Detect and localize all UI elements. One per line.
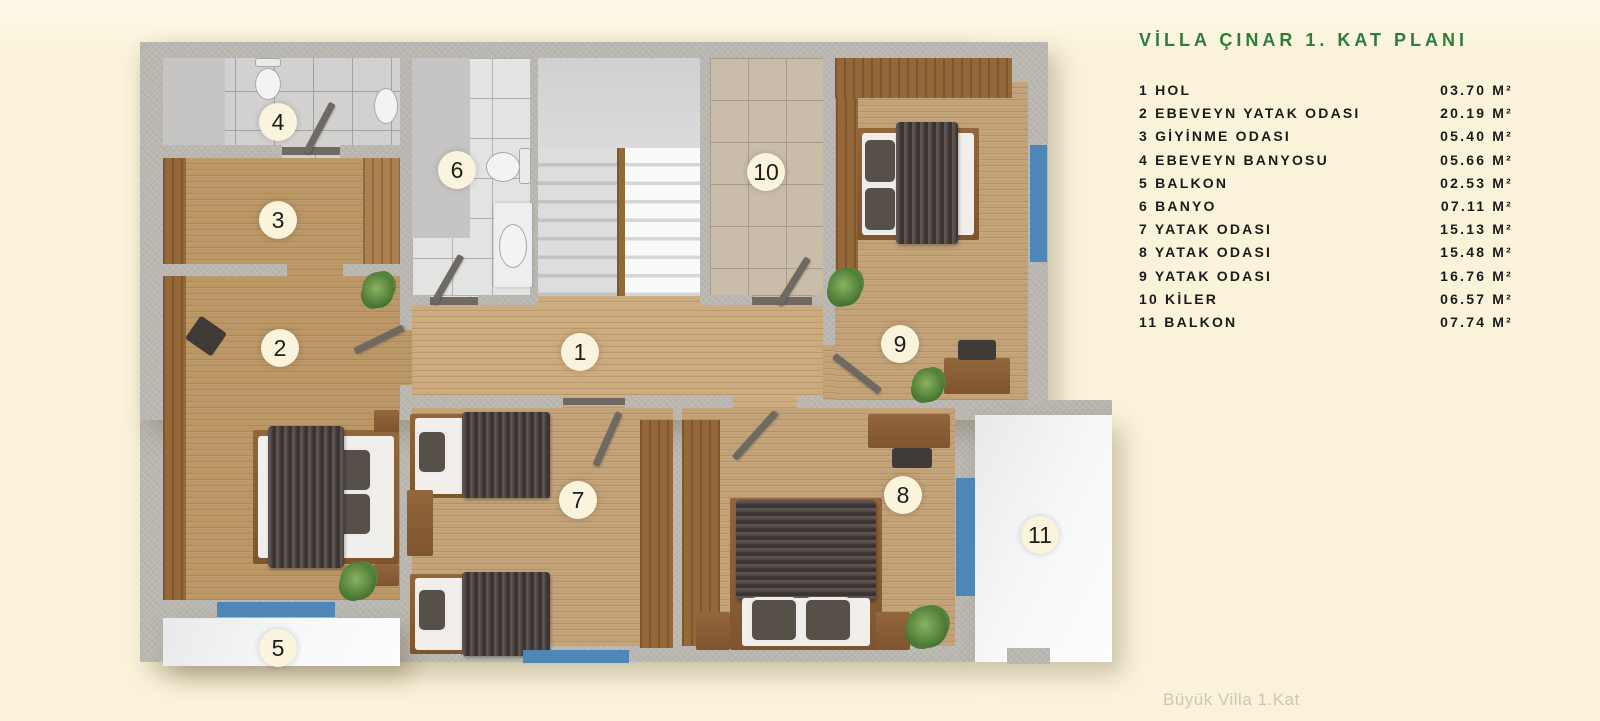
legend-room-area: 07.74 M² xyxy=(1440,314,1513,330)
legend-row-7: 7 YATAK ODASI15.13 M² xyxy=(1139,221,1513,244)
blanket-room9 xyxy=(896,122,958,244)
toilet-icon-room6 xyxy=(486,152,520,182)
blanket-room7-a xyxy=(462,412,550,498)
legend-room-area: 03.70 M² xyxy=(1440,82,1513,98)
legend-room-name: 10 KİLER xyxy=(1139,291,1218,307)
plan-caption: Büyük Villa 1.Kat xyxy=(1163,690,1300,710)
legend-row-1: 1 HOL03.70 M² xyxy=(1139,82,1513,105)
room-badge-4: 4 xyxy=(259,103,297,141)
room-badge-7: 7 xyxy=(559,481,597,519)
room-badge-8: 8 xyxy=(884,476,922,514)
legend-room-area: 05.40 M² xyxy=(1440,128,1513,144)
stair-flight-left xyxy=(538,148,617,296)
legend-room-name: 6 BANYO xyxy=(1139,198,1217,214)
balcony-11-pillar xyxy=(1007,648,1050,664)
legend-room-area: 15.48 M² xyxy=(1440,244,1513,260)
page-title: VİLLA ÇINAR 1. KAT PLANI xyxy=(1139,30,1513,51)
room-6-shower-area xyxy=(412,58,470,238)
plant-room2 xyxy=(340,562,376,600)
pillow-room8-b xyxy=(806,600,850,640)
legend-room-area: 06.57 M² xyxy=(1440,291,1513,307)
stair-flight-right xyxy=(625,148,700,296)
room-4-shower-area xyxy=(163,58,225,145)
room-3-wardrobe-right xyxy=(363,158,400,264)
room-badge-6: 6 xyxy=(438,151,476,189)
pillow-room7-a xyxy=(419,432,445,472)
legend-row-9: 9 YATAK ODASI16.76 M² xyxy=(1139,268,1513,291)
pillow-room9-b xyxy=(865,188,895,230)
door-opening-room9 xyxy=(823,345,835,400)
bidet-icon-room4 xyxy=(374,88,398,124)
dresser-room9 xyxy=(836,98,858,270)
door-opening-room2 xyxy=(400,330,412,385)
toilet-tank-room6 xyxy=(519,148,531,184)
legend-room-area: 16.76 M² xyxy=(1440,268,1513,284)
desk-room9 xyxy=(944,358,1010,394)
legend-room-area: 02.53 M² xyxy=(1440,175,1513,191)
wardrobe-room9 xyxy=(835,58,1012,98)
legend-room-name: 5 BALKON xyxy=(1139,175,1228,191)
legend-row-10: 10 KİLER06.57 M² xyxy=(1139,291,1513,314)
toilet-icon-room4 xyxy=(255,68,281,100)
plant-room9-desk xyxy=(912,368,944,402)
door-opening-room8 xyxy=(733,396,797,408)
pillow-room9-a xyxy=(865,140,895,182)
blanket-room7-b xyxy=(462,572,550,656)
legend-room-name: 7 YATAK ODASI xyxy=(1139,221,1272,237)
legend-room-name: 9 YATAK ODASI xyxy=(1139,268,1272,284)
legend-rows: 1 HOL03.70 M²2 EBEVEYN YATAK ODASI20.19 … xyxy=(1139,82,1513,337)
nightstand-room2-a xyxy=(374,410,399,432)
room-badge-5: 5 xyxy=(259,629,297,667)
room-badge-1: 1 xyxy=(561,333,599,371)
legend-room-area: 15.13 M² xyxy=(1440,221,1513,237)
room-1-hall-floor xyxy=(412,305,823,395)
blanket-room8 xyxy=(736,500,876,600)
legend-room-name: 4 EBEVEYN BANYOSU xyxy=(1139,152,1329,168)
room-badge-2: 2 xyxy=(261,329,299,367)
wardrobe-room7 xyxy=(640,420,673,648)
stair-divider xyxy=(617,148,625,296)
hall-stair-connector xyxy=(538,296,700,305)
legend-room-name: 2 EBEVEYN YATAK ODASI xyxy=(1139,105,1361,121)
legend-room-area: 05.66 M² xyxy=(1440,152,1513,168)
legend-row-5: 5 BALKON02.53 M² xyxy=(1139,175,1513,198)
legend-row-8: 8 YATAK ODASI15.48 M² xyxy=(1139,244,1513,267)
legend-row-3: 3 GİYİNME ODASI05.40 M² xyxy=(1139,128,1513,151)
legend-room-name: 8 YATAK ODASI xyxy=(1139,244,1272,260)
chair-room8 xyxy=(892,448,932,468)
plant-room8 xyxy=(906,606,948,648)
room-9-wall-notch xyxy=(1012,58,1048,82)
sink-icon-room6 xyxy=(499,224,527,268)
toilet-tank-room4 xyxy=(255,58,281,67)
room-badge-3: 3 xyxy=(259,201,297,239)
desk-room8 xyxy=(868,414,950,448)
balcony-11-top-wall xyxy=(955,400,1112,415)
balcony-door-room2 xyxy=(217,602,335,617)
legend-row-11: 11 BALKON07.74 M² xyxy=(1139,314,1513,337)
door-threshold-room7 xyxy=(563,398,625,405)
legend-room-name: 3 GİYİNME ODASI xyxy=(1139,128,1291,144)
door-opening-room3 xyxy=(287,264,343,276)
room-badge-10: 10 xyxy=(747,153,785,191)
nightstand-room2-b xyxy=(374,564,399,586)
room-2-wardrobe-left xyxy=(163,276,186,600)
room-badge-11: 11 xyxy=(1021,516,1059,554)
plant-room2-corner xyxy=(362,272,394,308)
stair-landing xyxy=(538,58,700,148)
legend-room-name: 1 HOL xyxy=(1139,82,1191,98)
sidetable-room8-a xyxy=(696,612,730,650)
room-3-wardrobe-left xyxy=(163,158,186,264)
sidetable-room8-b xyxy=(876,612,910,650)
pillow-room7-b xyxy=(419,590,445,630)
plant-room9 xyxy=(828,268,862,306)
legend-room-area: 07.11 M² xyxy=(1441,198,1513,214)
nightstand-room7 xyxy=(407,490,433,556)
window-room7 xyxy=(523,650,629,663)
balcony-door-room8 xyxy=(956,478,975,596)
chair-room9 xyxy=(958,340,996,360)
legend-room-name: 11 BALKON xyxy=(1139,314,1237,330)
pillow-room8-a xyxy=(752,600,796,640)
legend-room-area: 20.19 M² xyxy=(1440,105,1513,121)
legend-row-4: 4 EBEVEYN BANYOSU05.66 M² xyxy=(1139,152,1513,175)
room-badge-9: 9 xyxy=(881,325,919,363)
legend-panel: VİLLA ÇINAR 1. KAT PLANI 1 HOL03.70 M²2 … xyxy=(1139,30,1513,337)
legend-row-6: 6 BANYO07.11 M² xyxy=(1139,198,1513,221)
legend-row-2: 2 EBEVEYN YATAK ODASI20.19 M² xyxy=(1139,105,1513,128)
blanket-room2 xyxy=(268,426,344,568)
floor-plan: 1234567891011 xyxy=(0,0,1130,721)
window-room9 xyxy=(1030,145,1047,262)
